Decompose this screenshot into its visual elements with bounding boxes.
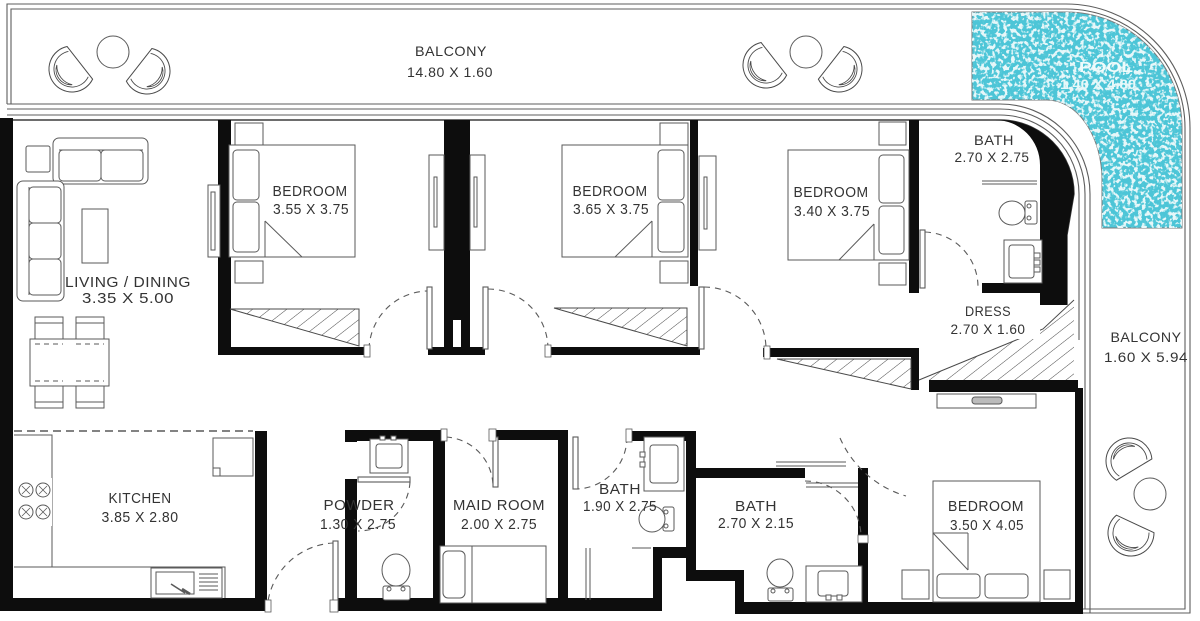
svg-text:BATH: BATH [974, 132, 1014, 148]
svg-text:1.40 X 4.80: 1.40 X 4.80 [1060, 76, 1136, 92]
svg-text:3.35 X 5.00: 3.35 X 5.00 [82, 290, 174, 307]
svg-text:2.00 X 2.75: 2.00 X 2.75 [461, 516, 537, 533]
svg-text:2.70 X 1.60: 2.70 X 1.60 [951, 321, 1026, 337]
svg-text:3.55 X 3.75: 3.55 X 3.75 [273, 201, 349, 218]
svg-text:BATH: BATH [599, 481, 641, 498]
svg-text:3.50 X 4.05: 3.50 X 4.05 [950, 517, 1024, 534]
svg-text:LIVING / DINING: LIVING / DINING [65, 274, 191, 291]
svg-text:2.70 X 2.15: 2.70 X 2.15 [718, 515, 794, 532]
svg-text:BEDROOM: BEDROOM [794, 184, 869, 201]
svg-text:14.80 X 1.60: 14.80 X 1.60 [407, 64, 493, 80]
svg-text:BEDROOM: BEDROOM [948, 498, 1024, 515]
svg-text:BEDROOM: BEDROOM [273, 183, 348, 200]
svg-text:BALCONY: BALCONY [415, 43, 487, 59]
svg-text:3.65 X 3.75: 3.65 X 3.75 [573, 201, 649, 218]
svg-text:POOL: POOL [1079, 60, 1133, 76]
svg-text:1.60 X 5.94: 1.60 X 5.94 [1104, 349, 1188, 365]
svg-text:BALCONY: BALCONY [1111, 329, 1182, 345]
svg-text:BEDROOM: BEDROOM [573, 183, 648, 200]
svg-text:MAID ROOM: MAID ROOM [453, 497, 545, 514]
svg-text:KITCHEN: KITCHEN [109, 490, 172, 507]
svg-text:BATH: BATH [735, 498, 777, 515]
svg-text:2.70 X 2.75: 2.70 X 2.75 [955, 149, 1030, 165]
svg-text:3.40 X 3.75: 3.40 X 3.75 [794, 203, 870, 220]
svg-text:POWDER: POWDER [324, 497, 395, 514]
svg-text:3.85 X 2.80: 3.85 X 2.80 [102, 509, 179, 526]
svg-text:1.90 X 2.75: 1.90 X 2.75 [583, 498, 657, 515]
svg-text:1.30 X 2.75: 1.30 X 2.75 [320, 516, 396, 533]
svg-text:DRESS: DRESS [965, 303, 1011, 319]
